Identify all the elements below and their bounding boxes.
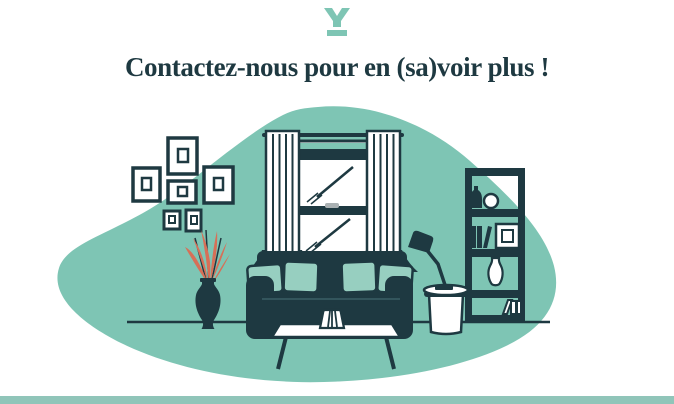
window-latch: [325, 203, 339, 208]
table-vase-icon: [320, 310, 344, 328]
curtain-left: [266, 131, 299, 254]
teal-bar: [0, 396, 674, 404]
side-table: [424, 285, 468, 334]
sofa-cushion: [341, 261, 376, 292]
sofa-armrest: [246, 276, 274, 339]
brand-y-logo-icon: [321, 7, 353, 39]
window-pane-lower: [302, 215, 363, 256]
ball-icon: [484, 194, 498, 208]
picture-frame-icon: [164, 211, 180, 229]
picture-frame-icon: [168, 138, 197, 174]
curtain-right: [367, 131, 400, 254]
picture-frame-icon: [186, 210, 201, 231]
book-icon: [517, 301, 521, 314]
page-title: Contactez-nous pour en (sa)voir plus !: [0, 52, 674, 83]
picture-frame-icon: [204, 167, 233, 203]
living-room-illustration: [0, 100, 674, 396]
book-icon: [511, 301, 516, 314]
book-icon: [471, 226, 476, 248]
picture-frame-icon: [168, 181, 196, 203]
sofa-cushion: [283, 261, 318, 292]
picture-frame-icon: [133, 168, 160, 201]
shelf-vase-icon: [488, 258, 502, 285]
curtained-window: [247, 131, 418, 272]
book-icon: [477, 226, 482, 248]
